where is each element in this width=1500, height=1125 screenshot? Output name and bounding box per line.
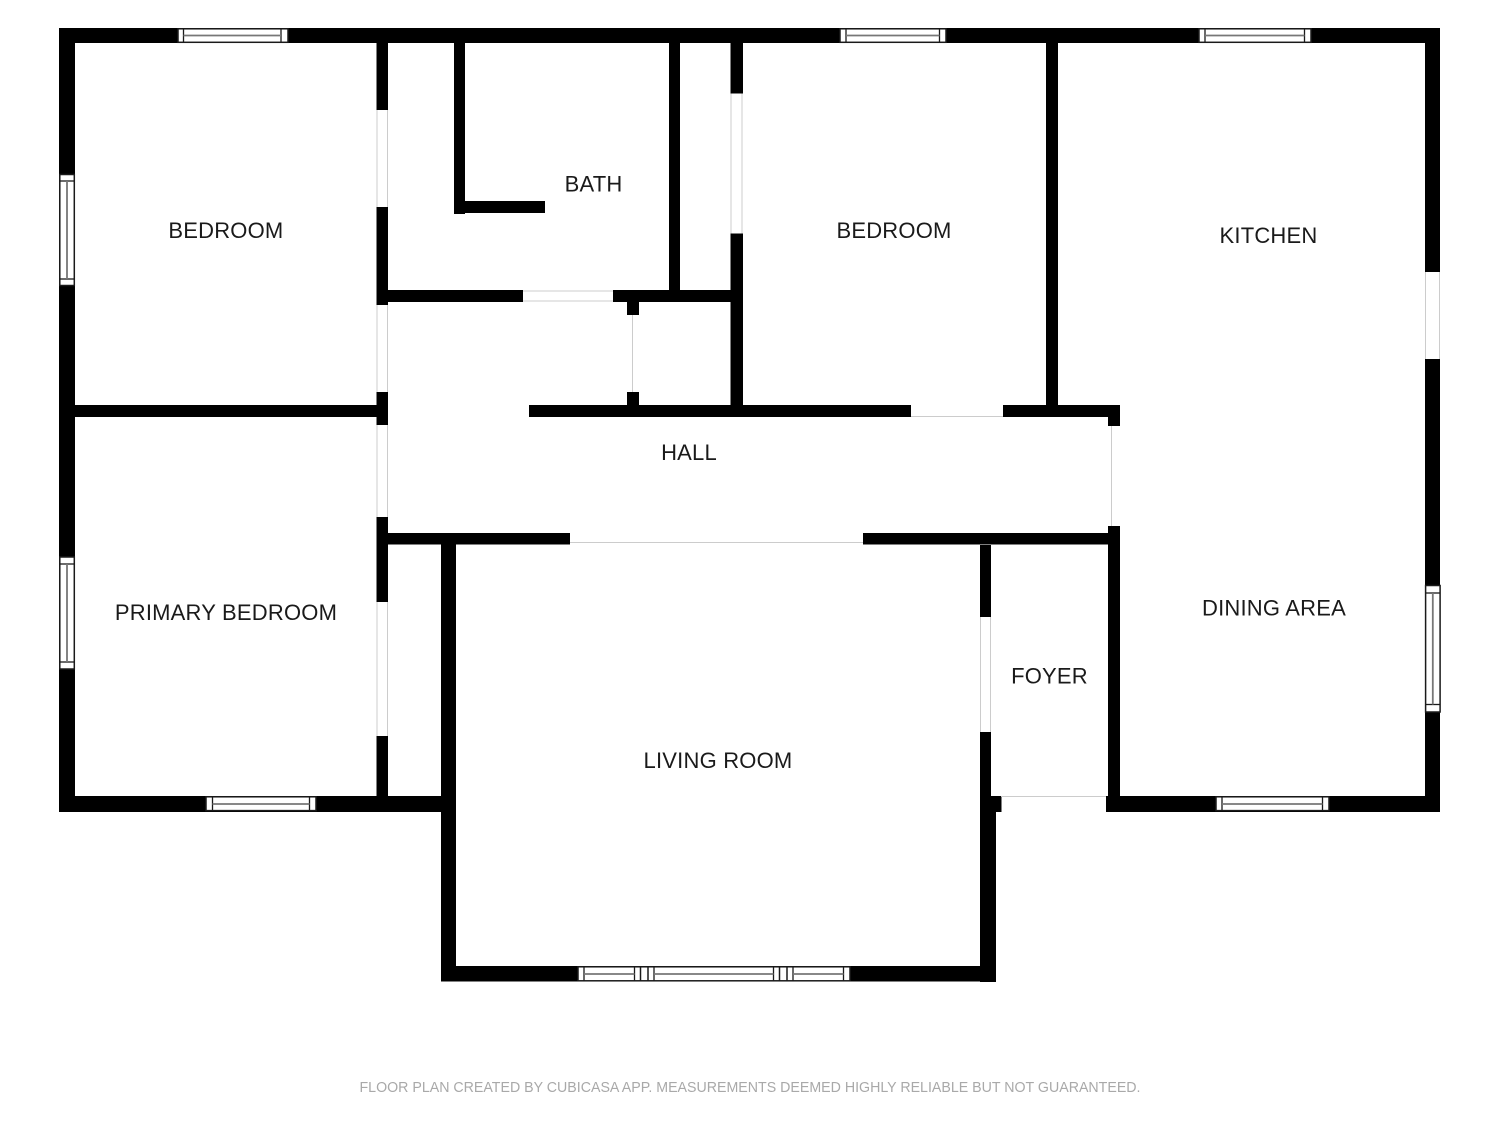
svg-text:HALL: HALL: [661, 440, 717, 465]
svg-text:FOYER: FOYER: [1011, 663, 1088, 688]
svg-text:FLOOR PLAN CREATED BY CUBICASA: FLOOR PLAN CREATED BY CUBICASA APP. MEAS…: [360, 1079, 1141, 1096]
svg-text:PRIMARY BEDROOM: PRIMARY BEDROOM: [115, 600, 337, 625]
svg-text:BEDROOM: BEDROOM: [836, 218, 951, 243]
svg-text:DINING AREA: DINING AREA: [1202, 595, 1346, 620]
svg-text:LIVING ROOM: LIVING ROOM: [644, 748, 793, 773]
svg-text:BATH: BATH: [565, 172, 623, 197]
svg-text:BEDROOM: BEDROOM: [168, 218, 283, 243]
svg-text:KITCHEN: KITCHEN: [1220, 223, 1318, 248]
